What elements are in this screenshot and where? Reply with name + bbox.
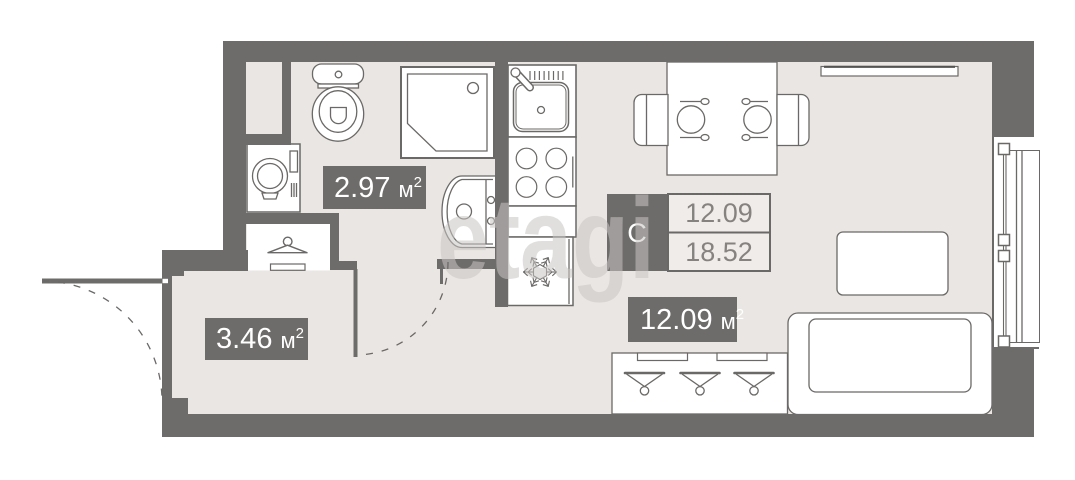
svg-text:etagi: etagi xyxy=(437,175,655,303)
svg-text:12.09: 12.09 xyxy=(685,198,753,228)
svg-text:3.46 м2: 3.46 м2 xyxy=(216,323,304,355)
svg-text:2.97 м2: 2.97 м2 xyxy=(334,172,422,204)
svg-text:18.52: 18.52 xyxy=(685,237,753,267)
svg-text:12.09 м2: 12.09 м2 xyxy=(640,304,744,336)
